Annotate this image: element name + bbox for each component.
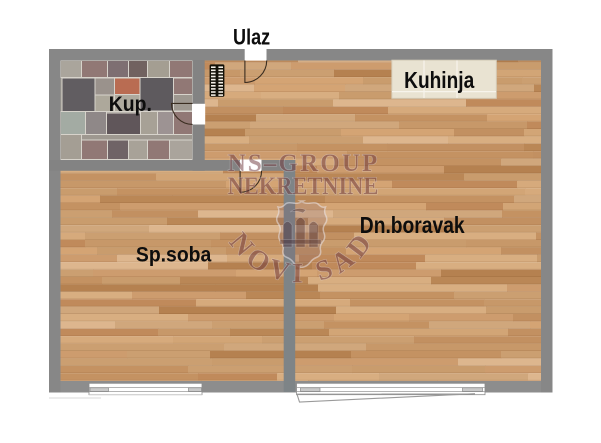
svg-text:Kuhinja: Kuhinja xyxy=(404,67,474,93)
svg-text:Sp.soba: Sp.soba xyxy=(136,242,212,266)
svg-text:Ulaz: Ulaz xyxy=(233,24,270,49)
svg-text:Kup.: Kup. xyxy=(109,92,152,116)
svg-text:NEKRETNINE: NEKRETNINE xyxy=(228,173,379,200)
svg-text:Dn.boravak: Dn.boravak xyxy=(360,212,465,238)
